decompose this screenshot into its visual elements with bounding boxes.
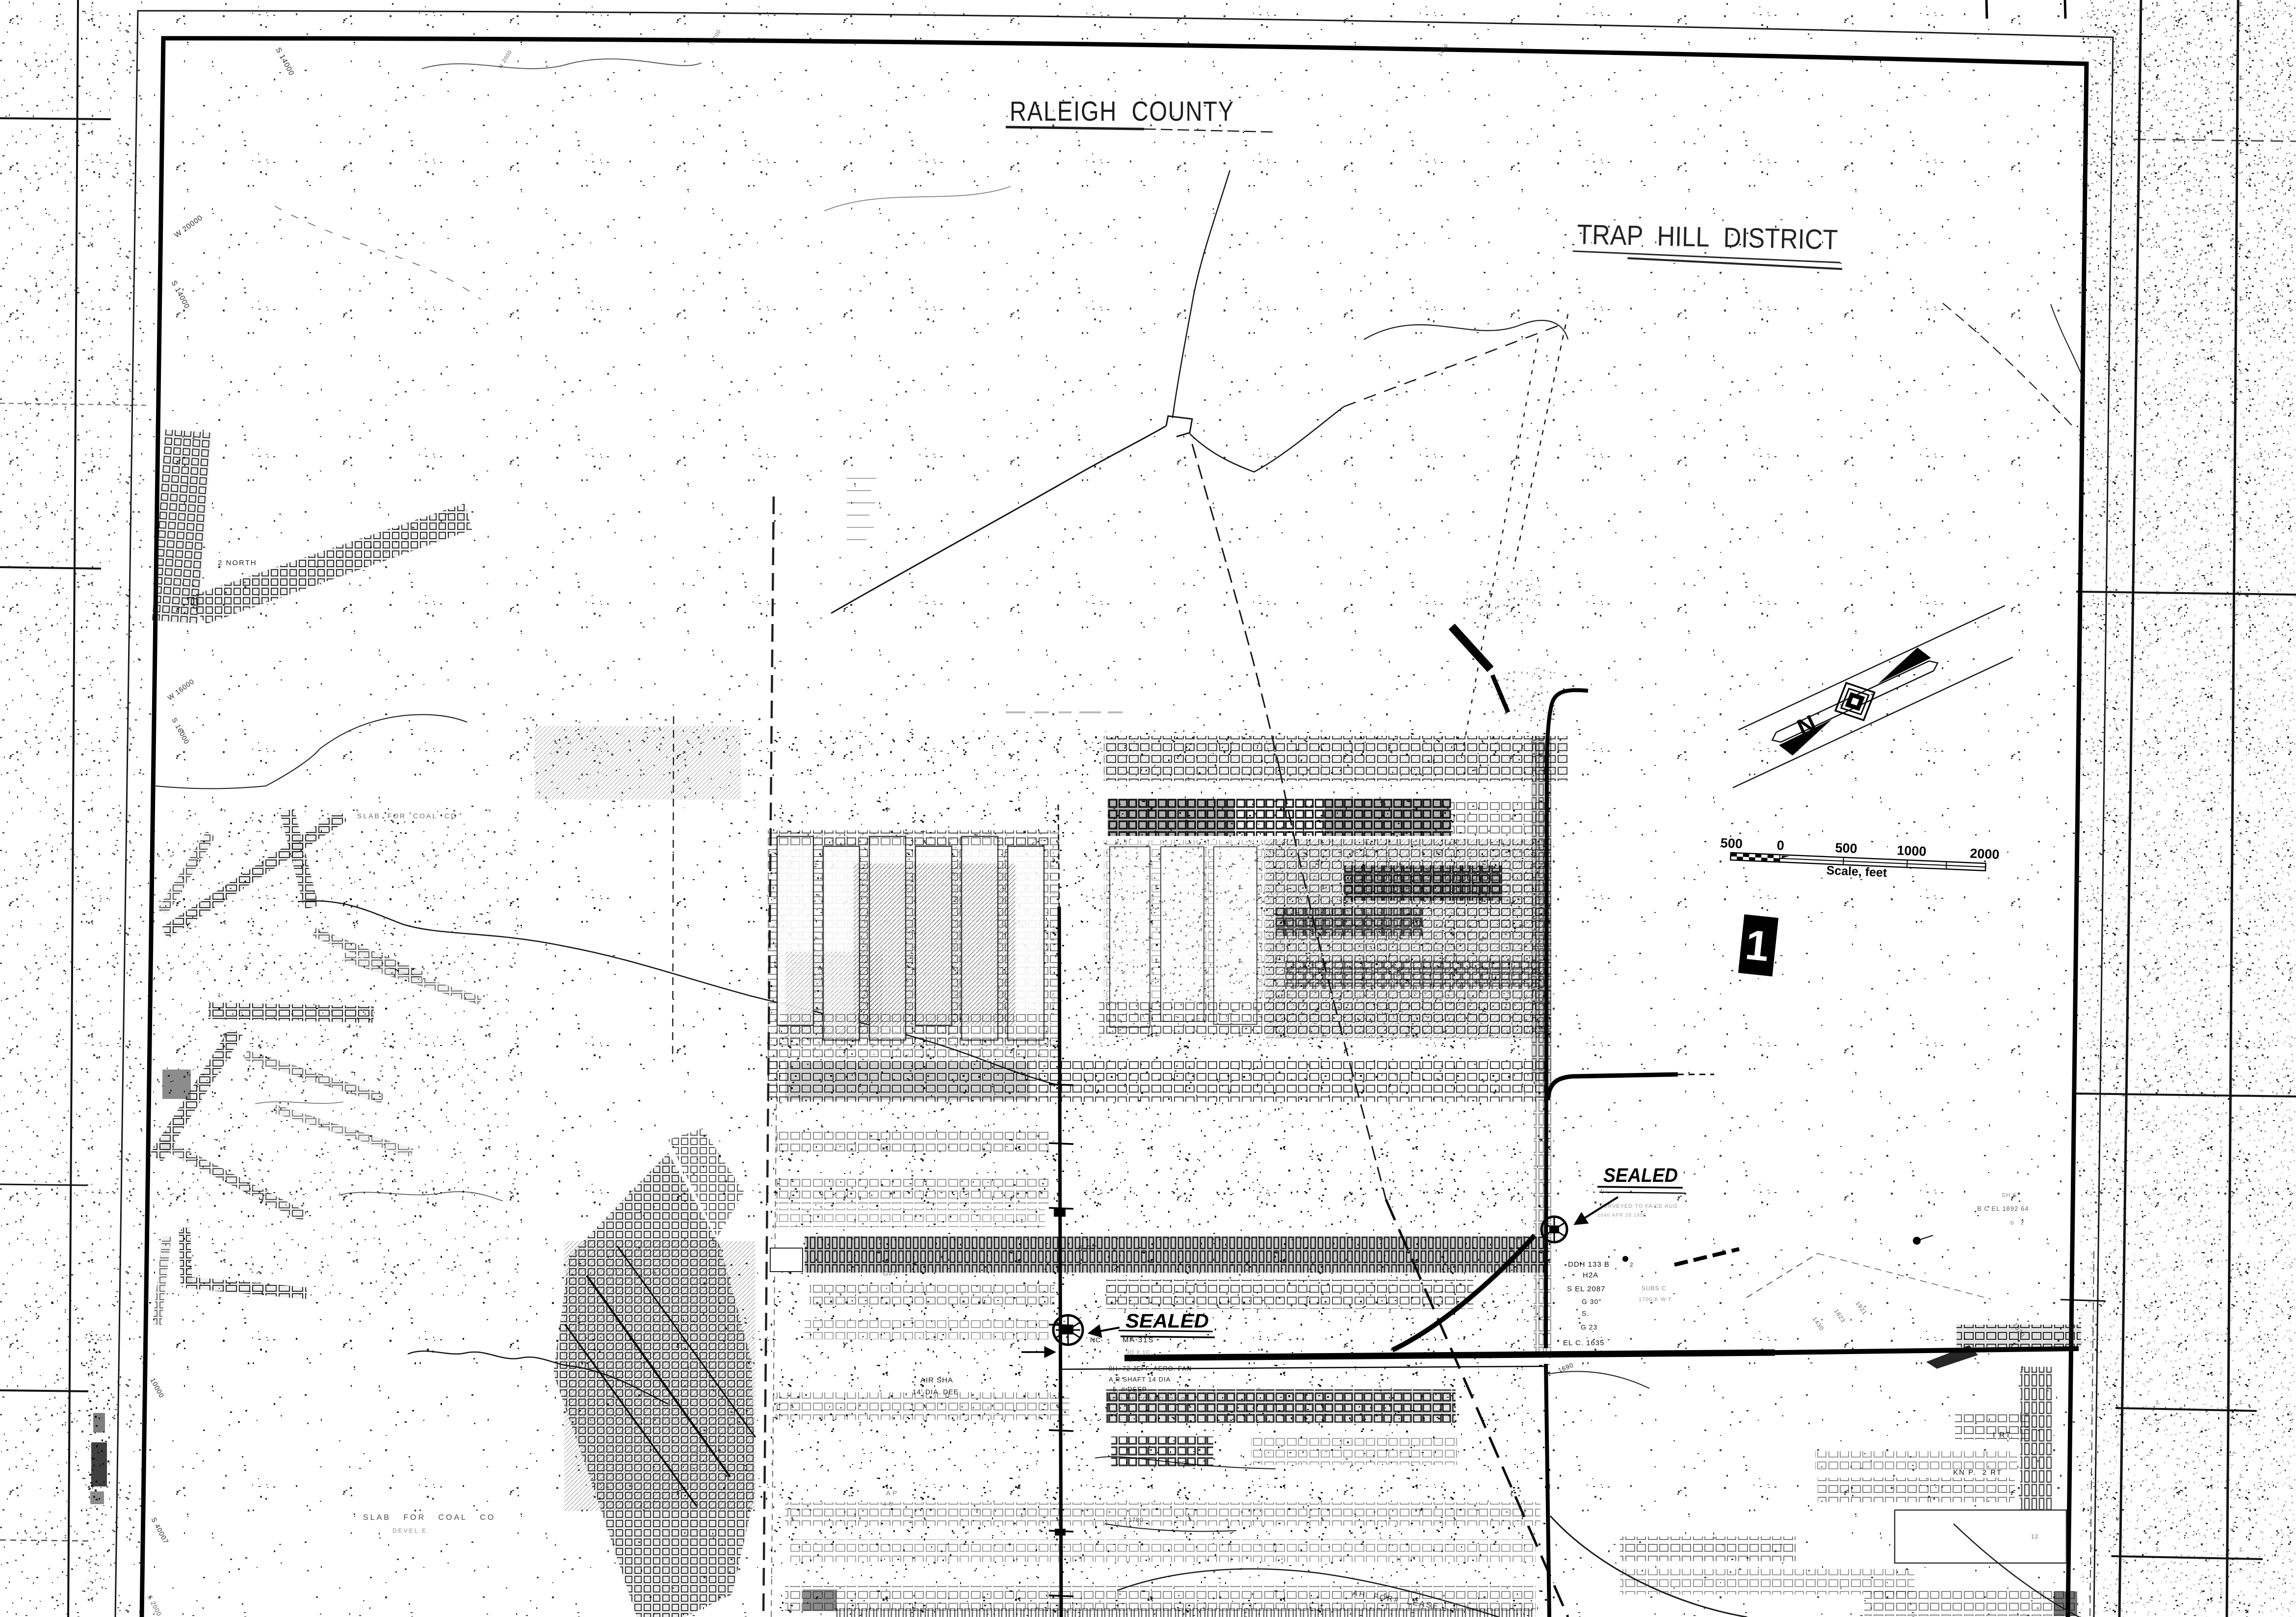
svg-text:KN P. 2 RT: KN P. 2 RT (1950, 1468, 2002, 1477)
svg-text:DEVEL E: DEVEL E (392, 1527, 427, 1534)
svg-text:EL C. 1635: EL C. 1635 (1563, 1339, 1605, 1347)
svg-text:1640 APR 28 1955: 1640 APR 28 1955 (1597, 1213, 1646, 1218)
svg-text:5. # DEEP: 5. # DEEP (1113, 1385, 1147, 1393)
svg-text:1: 1 (1743, 921, 1772, 970)
svg-text:A P: A P (886, 1489, 897, 1497)
svg-text:2000: 2000 (1970, 846, 2000, 861)
svg-text:500: 500 (1835, 840, 1857, 856)
svg-text:TRAP HILL DISTRICT: TRAP HILL DISTRICT (1577, 219, 1838, 256)
svg-text:I RT.: I RT. (1993, 1431, 2014, 1439)
svg-text:SH K: SH K (2002, 1192, 2017, 1199)
svg-text:G 23: G 23 (1581, 1323, 1597, 1331)
svg-text:b 2: b 2 (2010, 1219, 2024, 1226)
svg-text:A R SHAFT 14 DIA: A R SHAFT 14 DIA (1109, 1376, 1171, 1383)
svg-text:5 RT: 5 RT (1078, 1245, 1097, 1253)
svg-text:1000: 1000 (1897, 843, 1927, 859)
svg-text:NC: NC (1090, 1336, 1101, 1344)
svg-text:MA 31S: MA 31S (1122, 1336, 1154, 1344)
svg-text:9H. 72 JEFF. AERO. FAN: 9H. 72 JEFF. AERO. FAN (1109, 1365, 1192, 1372)
svg-text:DDH 133 B: DDH 133 B (1568, 1260, 1610, 1269)
svg-text:Scale, feet: Scale, feet (1826, 863, 1887, 880)
svg-text:2 NORTH: 2 NORTH (218, 559, 257, 567)
svg-text:SEAL OF CCP NO 22 4 03: SEAL OF CCP NO 22 4 03 (1108, 1396, 1189, 1403)
svg-text:1700 K W T: 1700 K W T (1639, 1297, 1672, 1303)
svg-text:12: 12 (2031, 1533, 2038, 1540)
svg-text:RALEIGH COUNTY: RALEIGH COUNTY (1010, 96, 1234, 127)
svg-text:SUBS C: SUBS C (1642, 1285, 1667, 1292)
svg-text:SLAB FOR COAL CO: SLAB FOR COAL CO (363, 1513, 496, 1522)
svg-text:AIR SHA: AIR SHA (920, 1376, 953, 1384)
svg-text:3D X 1C: 3D X 1C (1126, 1350, 1150, 1356)
svg-text:SURVEYED TO FA CE AUG: SURVEYED TO FA CE AUG (1599, 1203, 1678, 1209)
svg-text:14′ DIA. DEE: 14′ DIA. DEE (913, 1388, 959, 1396)
svg-text:B C EL 1892 64: B C EL 1892 64 (1977, 1205, 2029, 1212)
svg-text:2: 2 (1630, 1261, 1634, 1268)
svg-text:0: 0 (1776, 838, 1784, 853)
svg-text:G 30″: G 30″ (1582, 1298, 1601, 1305)
svg-text:S EL 2087: S EL 2087 (1567, 1285, 1606, 1293)
svg-text:S.: S. (1582, 1309, 1589, 1317)
svg-text:4 6: 4 6 (883, 1501, 893, 1508)
svg-text:SEALED: SEALED (1603, 1165, 1678, 1186)
svg-text:1# 1!: 1# 1! (1128, 1357, 1143, 1363)
svg-text:G#T: G#T (883, 1270, 897, 1277)
svg-text:500: 500 (1720, 835, 1743, 851)
svg-text:H2A: H2A (1583, 1271, 1598, 1279)
svg-text:SEALED: SEALED (1125, 1310, 1209, 1332)
